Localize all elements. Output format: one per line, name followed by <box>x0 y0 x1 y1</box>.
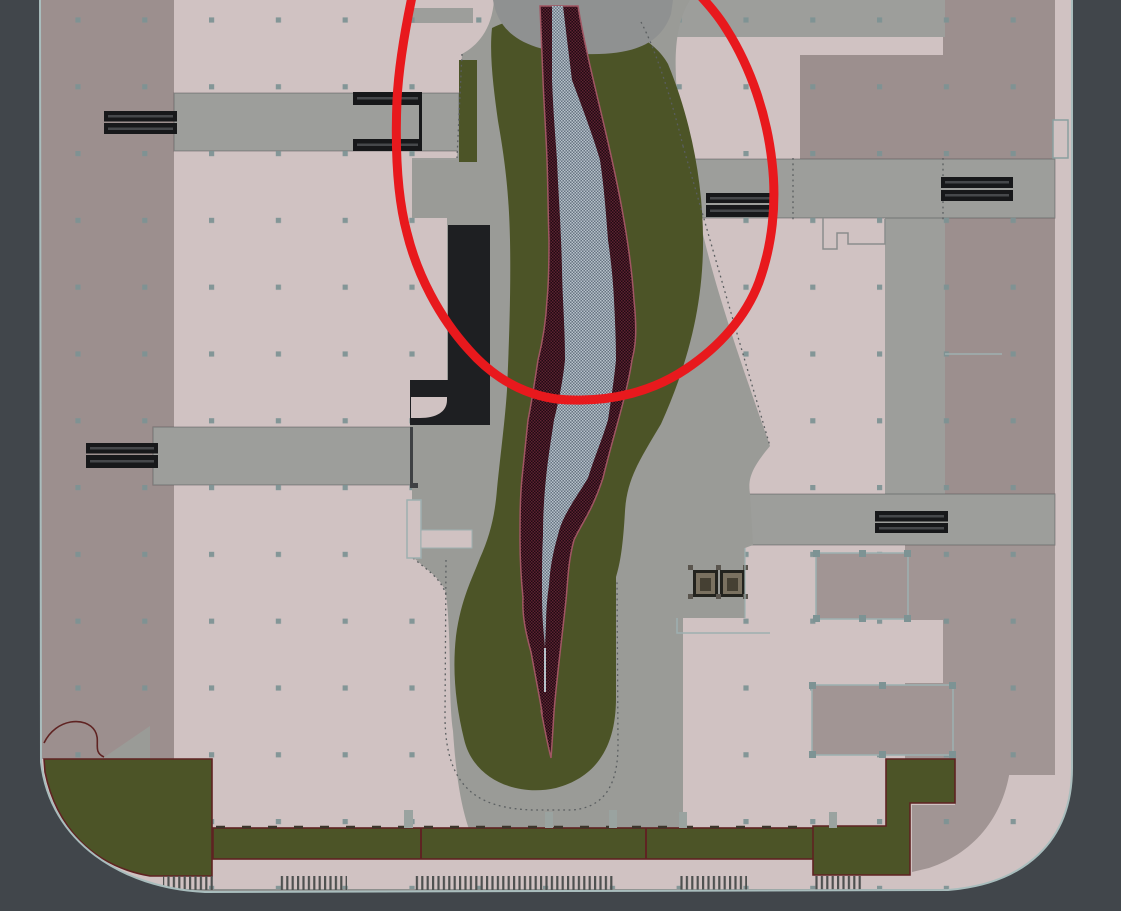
bench <box>720 570 745 597</box>
site-plan <box>0 0 1121 911</box>
post <box>829 812 837 828</box>
road-end-line <box>410 427 413 485</box>
road-end-tick <box>410 483 418 488</box>
plot-outline-northeast <box>1053 120 1068 158</box>
hatch-strip <box>280 876 347 890</box>
bridge-marker-e1 <box>706 193 776 217</box>
gripped-plot-1 <box>813 550 911 622</box>
plot-arm-west <box>421 530 472 548</box>
gripped-plot-2 <box>809 682 956 758</box>
hatch-strip <box>414 876 615 890</box>
hatch-strip <box>814 876 863 890</box>
site-area <box>40 0 1072 896</box>
post <box>404 810 413 828</box>
post <box>545 812 553 828</box>
bridge-marker-w <box>86 443 158 468</box>
hatch-strip <box>680 876 747 890</box>
post <box>609 810 617 828</box>
lawn-strip-west <box>459 60 477 162</box>
plot-outline-west <box>407 500 421 558</box>
site-plan-viewport <box>0 0 1121 911</box>
post <box>679 812 687 828</box>
lawn-strip-south <box>213 828 877 859</box>
bench <box>693 570 718 597</box>
